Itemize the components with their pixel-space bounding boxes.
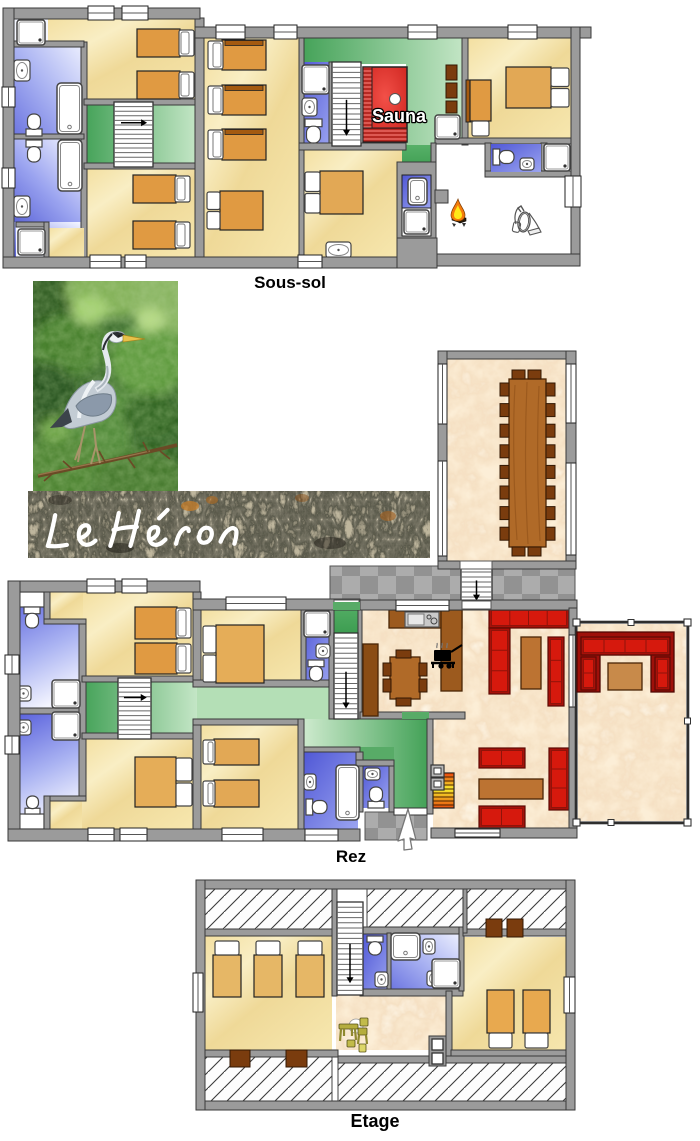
svg-text:Etage: Etage bbox=[350, 1111, 399, 1131]
svg-text:Sous-sol: Sous-sol bbox=[254, 273, 326, 292]
svg-text:Sauna: Sauna bbox=[372, 106, 427, 126]
svg-text:Rez: Rez bbox=[336, 847, 366, 866]
